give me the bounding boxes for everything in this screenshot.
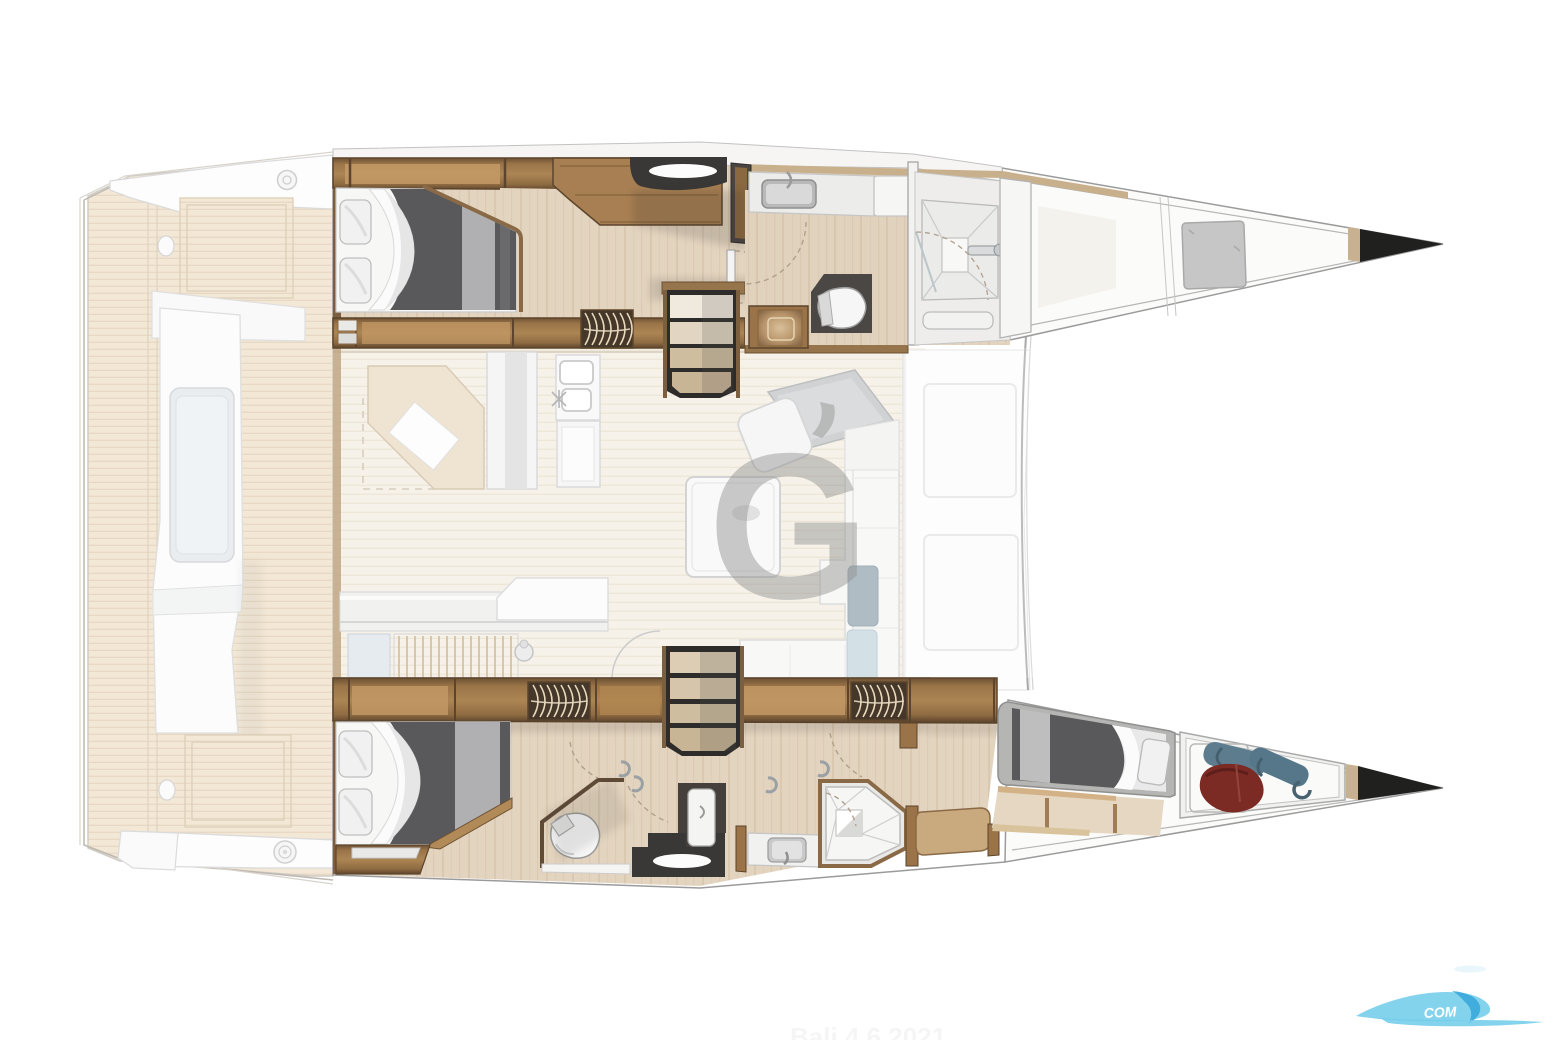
svg-text:COM: COM (1423, 1003, 1457, 1021)
svg-text:G: G (708, 411, 870, 643)
svg-text:Bali 4.6 2021: Bali 4.6 2021 (790, 1022, 946, 1040)
